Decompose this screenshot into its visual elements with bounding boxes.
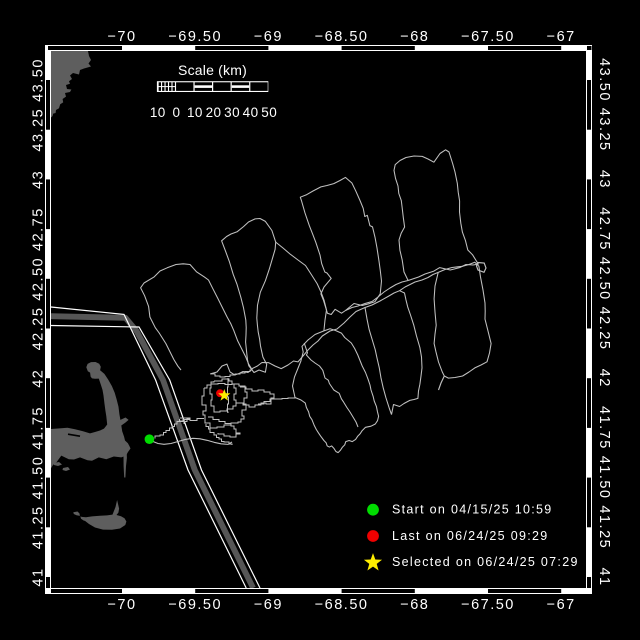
svg-text:Selected on 06/24/25 07:29: Selected on 06/24/25 07:29 xyxy=(392,555,579,569)
svg-text:41: 41 xyxy=(31,567,47,586)
svg-text:42.75: 42.75 xyxy=(596,207,612,251)
svg-text:42.75: 42.75 xyxy=(31,207,47,251)
svg-text:10: 10 xyxy=(187,105,203,120)
svg-text:−68.50: −68.50 xyxy=(315,597,369,613)
svg-text:Scale (km): Scale (km) xyxy=(178,62,247,78)
svg-text:−67.50: −67.50 xyxy=(461,597,515,613)
svg-text:Start on 04/15/25 10:59: Start on 04/15/25 10:59 xyxy=(392,503,553,517)
svg-text:41.75: 41.75 xyxy=(596,406,612,450)
svg-text:43.50: 43.50 xyxy=(31,58,47,102)
svg-text:−70: −70 xyxy=(107,29,136,45)
svg-text:42: 42 xyxy=(596,369,612,388)
svg-text:−68: −68 xyxy=(400,29,429,45)
svg-text:30: 30 xyxy=(224,105,240,120)
svg-text:43: 43 xyxy=(596,170,612,189)
svg-text:20: 20 xyxy=(206,105,222,120)
svg-text:43.50: 43.50 xyxy=(596,58,612,102)
svg-text:41.75: 41.75 xyxy=(31,406,47,450)
svg-text:41.50: 41.50 xyxy=(31,456,47,500)
svg-text:42: 42 xyxy=(31,369,47,388)
svg-text:42.25: 42.25 xyxy=(596,307,612,351)
svg-text:41.50: 41.50 xyxy=(596,456,612,500)
svg-text:−69: −69 xyxy=(254,29,283,45)
svg-text:−69: −69 xyxy=(254,597,283,613)
svg-text:42.50: 42.50 xyxy=(31,257,47,301)
svg-text:−68.50: −68.50 xyxy=(315,29,369,45)
svg-text:43.25: 43.25 xyxy=(31,108,47,152)
svg-text:41: 41 xyxy=(596,567,612,586)
svg-text:Last on 06/24/25 09:29: Last on 06/24/25 09:29 xyxy=(392,529,549,543)
svg-text:42.25: 42.25 xyxy=(31,307,47,351)
svg-text:41.25: 41.25 xyxy=(31,505,47,549)
svg-text:50: 50 xyxy=(261,105,277,120)
svg-text:0: 0 xyxy=(172,105,180,120)
svg-text:−68: −68 xyxy=(400,597,429,613)
svg-text:42.50: 42.50 xyxy=(596,257,612,301)
svg-text:−69.50: −69.50 xyxy=(168,29,222,45)
svg-text:41.25: 41.25 xyxy=(596,505,612,549)
svg-text:−70: −70 xyxy=(107,597,136,613)
svg-text:10: 10 xyxy=(150,105,166,120)
svg-text:43: 43 xyxy=(31,170,47,189)
svg-text:43.25: 43.25 xyxy=(596,108,612,152)
svg-text:40: 40 xyxy=(243,105,259,120)
svg-text:−67.50: −67.50 xyxy=(461,29,515,45)
svg-text:−69.50: −69.50 xyxy=(168,597,222,613)
svg-text:−67: −67 xyxy=(547,597,576,613)
svg-text:−67: −67 xyxy=(547,29,576,45)
